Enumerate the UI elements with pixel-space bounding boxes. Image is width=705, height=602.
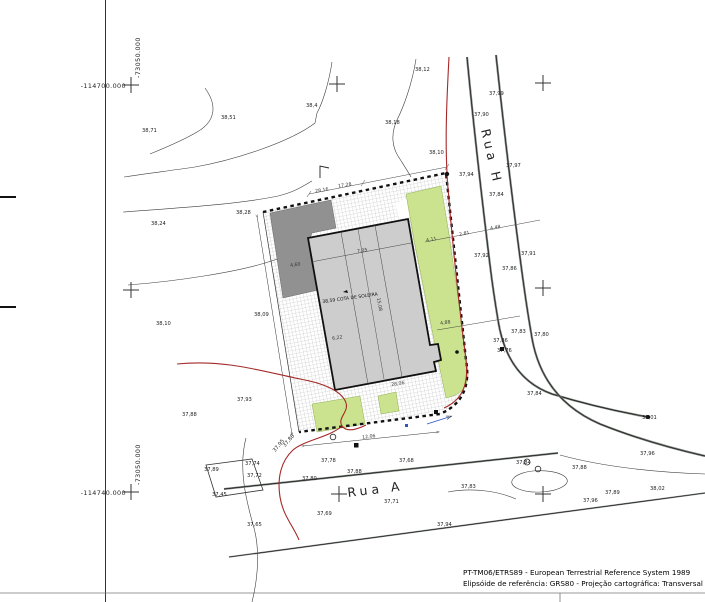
spot-elevation: 38,71	[142, 128, 157, 134]
spot-elevation: 37,68	[399, 458, 414, 464]
survey-point	[455, 350, 459, 354]
corner-curb-outer	[531, 332, 705, 456]
contour-line	[512, 471, 568, 492]
dimension-label: 4,48	[490, 224, 501, 232]
blue-point-icon	[405, 424, 408, 427]
coordinate-label-y-top: -73050.000	[134, 37, 142, 78]
contour-line	[393, 59, 416, 177]
street-label-rua-a: Rua A	[347, 478, 405, 500]
spot-elevation: 37,96	[583, 498, 598, 504]
spot-elevation: 38,12	[415, 67, 430, 73]
spot-elevation: 37,84	[516, 460, 532, 466]
survey-point	[434, 410, 438, 414]
spot-elevation: 37,84	[489, 192, 505, 198]
survey-point	[445, 172, 449, 176]
spot-elevation: 37,91	[521, 251, 536, 257]
spot-elevation: 37,88	[347, 469, 362, 475]
spot-elevation: 37,84	[527, 391, 543, 397]
spot-elevation: 37,88	[572, 465, 587, 471]
spot-elevation: 37,71	[384, 499, 399, 505]
manhole-icon	[330, 434, 336, 440]
spot-elevation: 38,01	[642, 415, 657, 421]
spot-elevation: 37,88	[182, 412, 197, 418]
spot-elevation: 37,89	[605, 490, 620, 496]
grid-cross	[535, 280, 551, 296]
spot-elevation: 38,4	[306, 103, 318, 109]
dimension-label: 12,06	[362, 433, 376, 441]
spot-elevation: 37,93	[237, 397, 252, 403]
coordinate-label-y-bottom: -73050.000	[134, 444, 142, 485]
grid-cross	[329, 76, 345, 92]
dimension-label: 17,28	[338, 181, 352, 189]
flag-marker-icon	[320, 166, 329, 178]
spot-elevation: 37,72	[247, 473, 262, 479]
spot-elevation: 37,78	[321, 458, 336, 464]
spot-elevation: 37,65	[247, 522, 262, 528]
spot-elevation: 37,88	[282, 433, 296, 448]
spot-elevation: 37,89	[204, 467, 219, 473]
dim-tick	[307, 191, 311, 197]
contour-line	[150, 88, 213, 154]
grid-cross	[331, 486, 347, 502]
spot-elevation: 37,80	[534, 332, 549, 338]
dimension-label: 2,81	[459, 230, 470, 238]
survey-point	[354, 443, 359, 448]
survey-drawing: -114700.000 -73050.000 -114740.000 -7305…	[0, 0, 705, 602]
spot-elevation: 37,69	[317, 511, 332, 517]
spot-elevation: 37,76	[497, 348, 512, 354]
spot-elevation: 38,09	[254, 312, 269, 318]
spot-elevation: 37,45	[212, 492, 227, 498]
spot-elevation: 37,96	[640, 451, 655, 457]
grid-cross	[535, 486, 551, 502]
spot-elevation: 37,80	[302, 476, 317, 482]
blue-flow-arrow-icon	[427, 417, 449, 424]
dimension-label: 28,16	[315, 186, 329, 194]
spot-elevation: 37,86	[493, 338, 508, 344]
red-line-top	[446, 57, 449, 173]
coordinate-label-x-top: -114700.000	[81, 82, 126, 90]
spot-elevation: 37,83	[511, 329, 526, 335]
contour-line	[448, 490, 516, 499]
spot-elevation: 37,97	[506, 163, 521, 169]
spot-elevation: 38,10	[429, 150, 444, 156]
footer-reference-system: PT-TM06/ETRS89 - European Terrestrial Re…	[463, 568, 691, 577]
spot-elevation: 37,90	[474, 112, 489, 118]
spot-elevation: 37,94	[437, 522, 453, 528]
spot-elevation: 37,94	[459, 172, 475, 178]
spot-elevation: 37,83	[461, 484, 476, 490]
green-patch-bottom-2	[378, 392, 399, 414]
spot-elevation: 37,99	[489, 91, 504, 97]
spot-elevation: 38,18	[385, 120, 400, 126]
spot-elevation: 38,02	[650, 486, 665, 492]
spot-elevation: 38,28	[236, 210, 251, 216]
street-label-rua-h: Rua H	[478, 127, 505, 186]
spot-elevation: 37,92	[474, 253, 489, 259]
spot-elevation: 37,74	[245, 461, 261, 467]
spot-elevation: 37,86	[502, 266, 517, 272]
grid-cross	[535, 75, 551, 91]
spot-elevation: 38,51	[221, 115, 236, 121]
coordinate-label-x-bottom: -114740.000	[81, 489, 126, 497]
spot-elevation: 38,10	[156, 321, 171, 327]
footer-ellipsoid-projection: Elipsóide de referência: GRS80 - Projeçã…	[463, 579, 705, 588]
site-plan-canvas: -114700.000 -73050.000 -114740.000 -7305…	[0, 0, 705, 602]
spot-elevation: 38,24	[151, 221, 167, 227]
rua-a-south-edge-line	[229, 493, 705, 557]
